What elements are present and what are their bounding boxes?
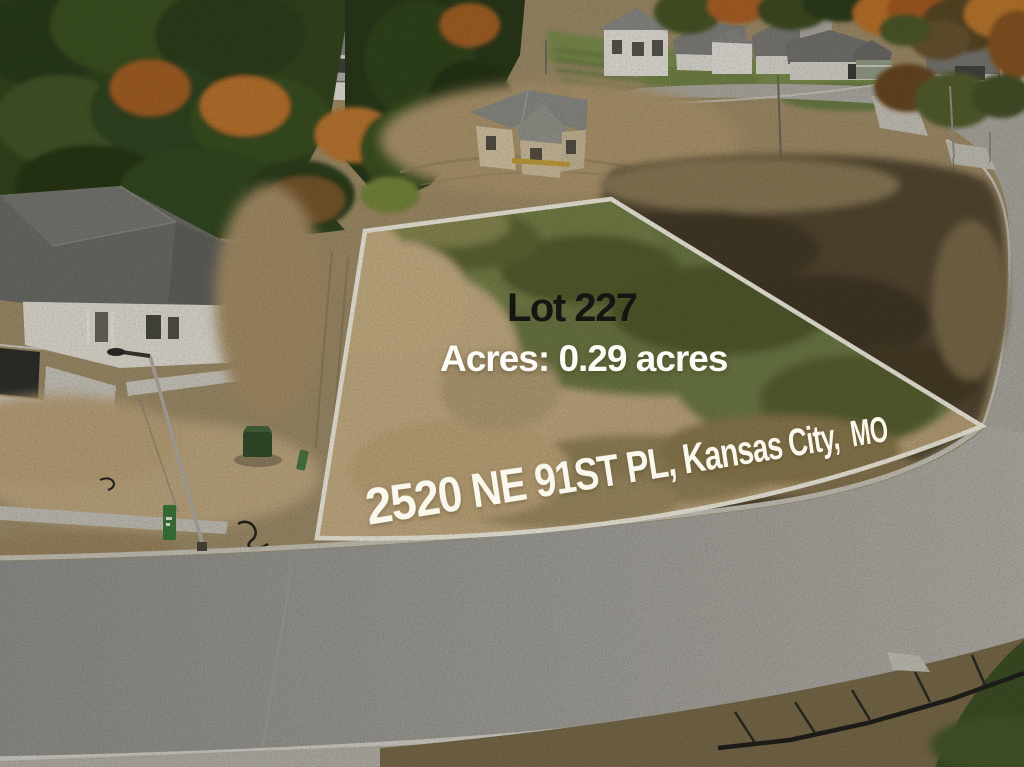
aerial-photo: Lot 227 Acres: 0.29 acres 2520 NE 91ST P… xyxy=(0,0,1024,767)
photo-grain xyxy=(0,0,1024,767)
photo-illustration xyxy=(0,0,1024,767)
